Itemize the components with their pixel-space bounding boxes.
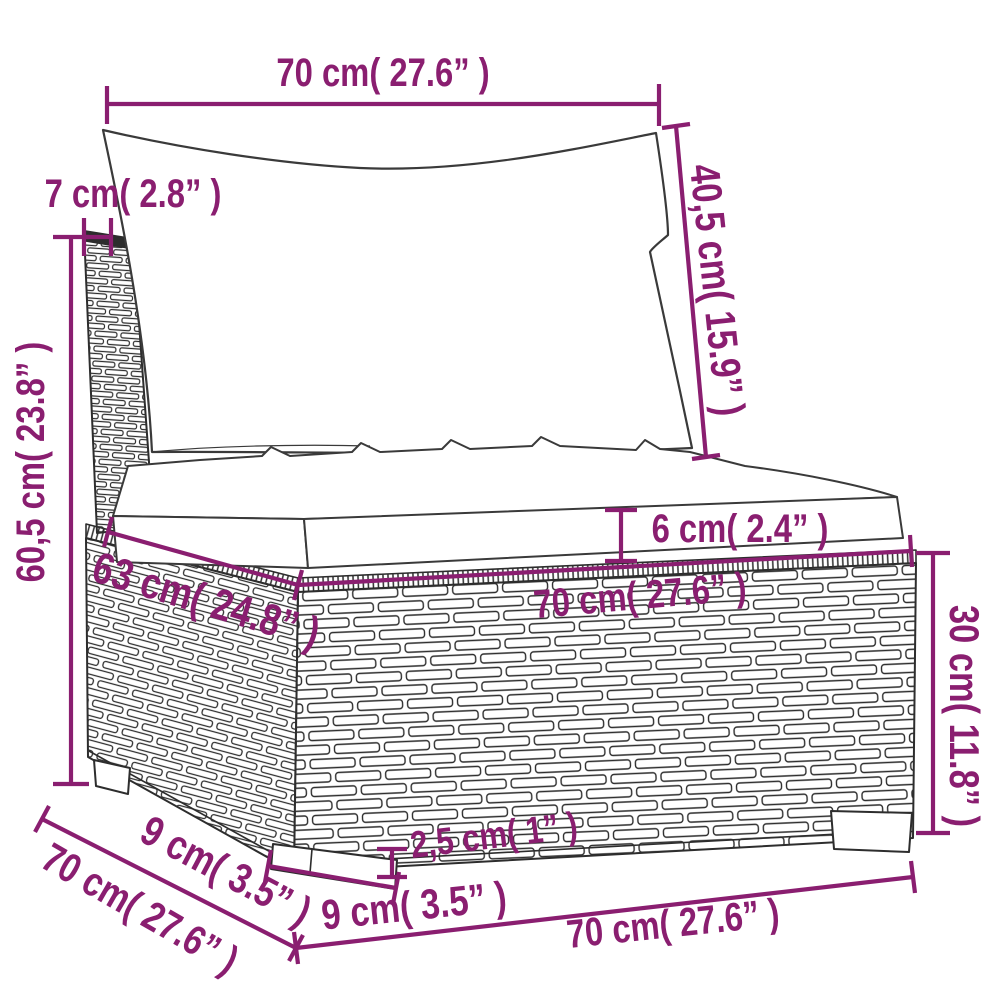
dim-back-total-height: 60,5 cm( 23.8” ) [11, 342, 51, 583]
dim-seat-cushion-thickness: 6 cm( 2.4” ) [652, 509, 829, 549]
dim-back-cushion-width: 70 cm( 27.6” ) [276, 53, 489, 93]
dim-base-height: 30 cm( 11.8” ) [943, 605, 985, 827]
foot-right [831, 811, 912, 852]
dim-back-frame-thickness: 7 cm( 2.8” ) [45, 174, 222, 214]
diagram-canvas: 70 cm( 27.6” ) 40,5 cm( 15.9” ) 7 cm( 2.… [0, 0, 1000, 1000]
